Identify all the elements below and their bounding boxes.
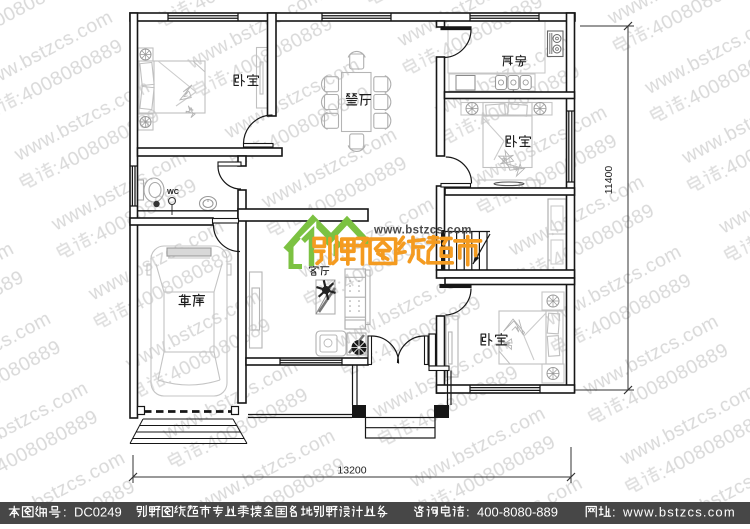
svg-text:www.bstzcs.com: www.bstzcs.com xyxy=(373,225,472,237)
svg-text:DC0249: DC0249 xyxy=(74,505,122,520)
svg-text:13200: 13200 xyxy=(337,465,366,477)
svg-text:www.bstzcs.com: www.bstzcs.com xyxy=(622,505,736,520)
svg-text::: : xyxy=(612,505,616,520)
svg-text:11400: 11400 xyxy=(603,166,615,195)
svg-text::: : xyxy=(466,505,470,520)
svg-text::: : xyxy=(63,505,67,520)
svg-text:400-8080-889: 400-8080-889 xyxy=(477,505,558,520)
svg-text:WC: WC xyxy=(167,187,179,196)
